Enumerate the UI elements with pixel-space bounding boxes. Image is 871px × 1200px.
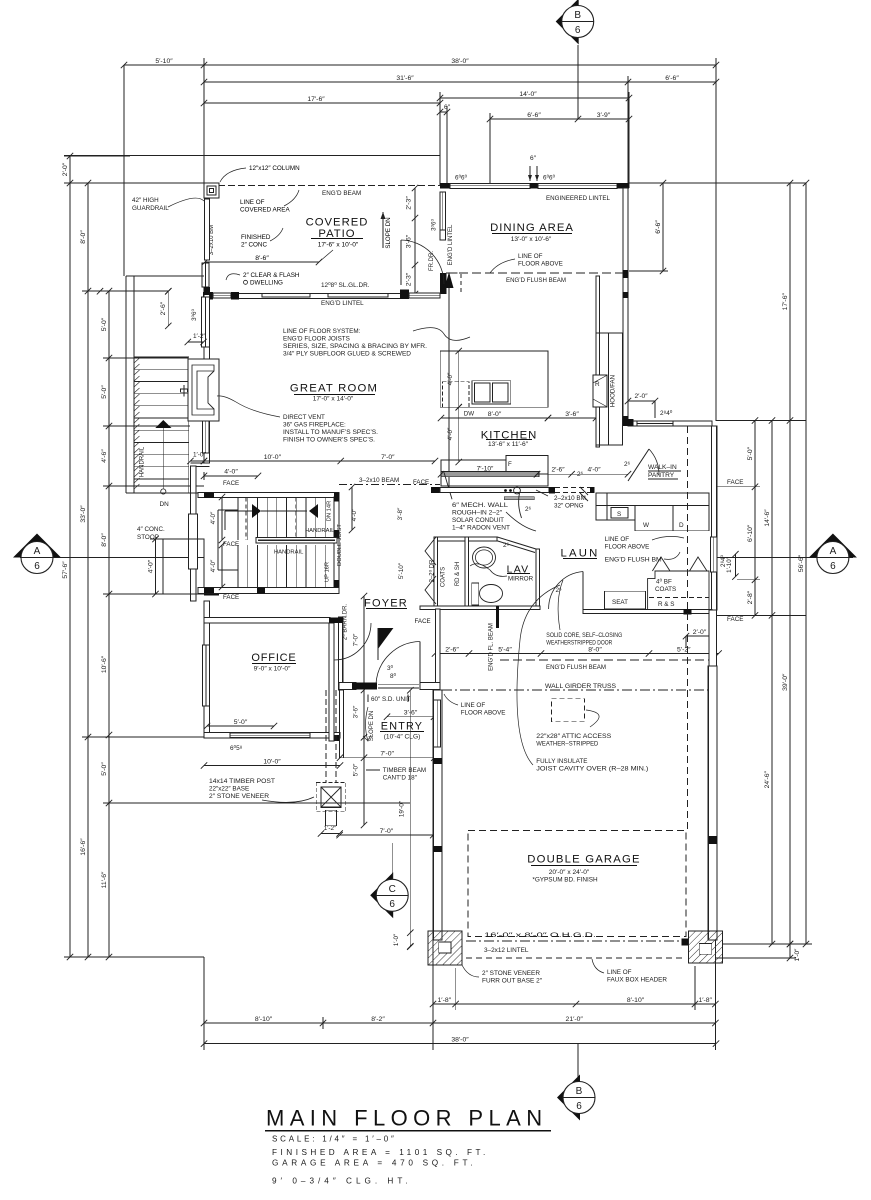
svg-text:33′-0″: 33′-0″ bbox=[80, 505, 87, 523]
svg-text:A: A bbox=[830, 546, 837, 557]
svg-text:56′-6″: 56′-6″ bbox=[798, 554, 805, 572]
svg-text:COATS: COATS bbox=[441, 567, 447, 587]
svg-text:FOYER: FOYER bbox=[364, 598, 408, 610]
svg-text:FAUX BOX HEADER: FAUX BOX HEADER bbox=[607, 977, 667, 984]
svg-text:7′-0″: 7′-0″ bbox=[353, 633, 360, 646]
svg-text:DWELLING: DWELLING bbox=[250, 280, 283, 287]
svg-text:22″x28″ ATTIC ACCESS: 22″x28″ ATTIC ACCESS bbox=[536, 733, 611, 740]
svg-text:6: 6 bbox=[34, 561, 40, 572]
svg-text:3′-9″: 3′-9″ bbox=[597, 112, 611, 119]
svg-text:6′-6″: 6′-6″ bbox=[665, 75, 679, 82]
svg-text:2′-3″: 2′-3″ bbox=[406, 272, 413, 286]
svg-text:UP 16R: UP 16R bbox=[325, 562, 331, 582]
svg-text:ENG’D BEAM: ENG’D BEAM bbox=[322, 190, 361, 197]
svg-text:FACE: FACE bbox=[415, 618, 431, 625]
svg-text:1′-2″: 1′-2″ bbox=[324, 825, 337, 832]
svg-text:17′-6″: 17′-6″ bbox=[782, 293, 789, 311]
svg-text:FLOOR ABOVE: FLOOR ABOVE bbox=[518, 261, 563, 268]
svg-text:ENG’D LINTEL: ENG’D LINTEL bbox=[448, 224, 454, 265]
svg-text:COVERED AREA: COVERED AREA bbox=[240, 207, 290, 214]
svg-text:GUARDRAIL: GUARDRAIL bbox=[132, 205, 169, 212]
svg-text:WEATHER–STRIPPED: WEATHER–STRIPPED bbox=[536, 741, 598, 748]
svg-text:8⁰: 8⁰ bbox=[390, 673, 397, 680]
svg-text:INSTALL TO MANUF’S SPEC’S.: INSTALL TO MANUF’S SPEC’S. bbox=[283, 429, 378, 436]
svg-text:7′-0″: 7′-0″ bbox=[380, 828, 394, 835]
svg-text:39′-0″: 39′-0″ bbox=[782, 673, 789, 691]
svg-text:5′-0″: 5′-0″ bbox=[747, 446, 754, 460]
svg-text:10′-0″: 10′-0″ bbox=[264, 454, 282, 461]
svg-text:5′-0″: 5′-0″ bbox=[234, 719, 248, 726]
svg-text:4′-6″: 4′-6″ bbox=[101, 449, 108, 463]
svg-text:RD & SH: RD & SH bbox=[455, 562, 461, 586]
svg-text:6″ MECH. WALL: 6″ MECH. WALL bbox=[452, 502, 509, 509]
svg-text:7′-10″: 7′-10″ bbox=[477, 466, 494, 473]
svg-text:LINE OF: LINE OF bbox=[607, 969, 632, 976]
svg-text:SEAT: SEAT bbox=[612, 599, 628, 606]
svg-text:6′-6″: 6′-6″ bbox=[655, 220, 662, 234]
svg-text:FINISHED AREA = 1101 SQ. FT.: FINISHED AREA = 1101 SQ. FT. bbox=[272, 1148, 489, 1157]
svg-text:6: 6 bbox=[830, 561, 836, 572]
svg-text:GARAGE AREA = 470 SQ. FT.: GARAGE AREA = 470 SQ. FT. bbox=[272, 1159, 476, 1168]
svg-text:14x14 TIMBER POST: 14x14 TIMBER POST bbox=[209, 778, 275, 785]
svg-text:11′-6″: 11′-6″ bbox=[101, 871, 108, 888]
svg-text:6″: 6″ bbox=[530, 155, 537, 162]
svg-text:6: 6 bbox=[576, 1101, 582, 1112]
svg-text:DW: DW bbox=[464, 410, 474, 417]
svg-text:8′-0″: 8′-0″ bbox=[588, 646, 602, 653]
svg-text:3/4″ PLY SUBFLOOR GLUED & SCRE: 3/4″ PLY SUBFLOOR GLUED & SCREWED bbox=[283, 351, 411, 358]
svg-text:FULLY INSULATE: FULLY INSULATE bbox=[536, 758, 587, 765]
svg-text:3′-6″: 3′-6″ bbox=[404, 710, 418, 717]
svg-text:1′-10″: 1′-10″ bbox=[726, 556, 733, 573]
svg-text:31′-6″: 31′-6″ bbox=[396, 75, 414, 82]
svg-text:1′-2″: 1′-2″ bbox=[193, 333, 206, 340]
svg-text:COVERED: COVERED bbox=[306, 217, 369, 229]
svg-text:2–2x10 BM: 2–2x10 BM bbox=[554, 495, 586, 502]
svg-text:5′-10″: 5′-10″ bbox=[155, 58, 173, 65]
svg-text:WEATHERSTRIPPED DOOR: WEATHERSTRIPPED DOOR bbox=[546, 640, 612, 647]
svg-text:LINE OF: LINE OF bbox=[240, 199, 265, 206]
svg-text:ENG’D LINTEL: ENG’D LINTEL bbox=[321, 300, 364, 307]
svg-text:5′-0″: 5′-0″ bbox=[101, 317, 108, 331]
svg-text:DIRECT VENT: DIRECT VENT bbox=[283, 414, 325, 421]
svg-text:20′-0″ x 24′-0″: 20′-0″ x 24′-0″ bbox=[549, 869, 590, 876]
svg-text:DOUBLE JOIST: DOUBLE JOIST bbox=[337, 524, 343, 566]
svg-text:42″ HIGH: 42″ HIGH bbox=[132, 197, 159, 204]
svg-text:6⁰5⁸: 6⁰5⁸ bbox=[230, 745, 243, 752]
svg-text:3–2x12 LINTEL: 3–2x12 LINTEL bbox=[484, 947, 529, 954]
svg-text:MAIN FLOOR PLAN: MAIN FLOOR PLAN bbox=[266, 1106, 547, 1131]
svg-text:FACE: FACE bbox=[223, 541, 239, 548]
svg-text:FLOOR ABOVE: FLOOR ABOVE bbox=[605, 544, 650, 551]
svg-text:LAUN: LAUN bbox=[561, 548, 600, 560]
svg-text:B: B bbox=[576, 1086, 583, 1097]
svg-text:2⁶: 2⁶ bbox=[556, 587, 563, 594]
svg-text:2′-8″: 2′-8″ bbox=[747, 590, 754, 604]
svg-text:9′-0″ x 10′-0″: 9′-0″ x 10′-0″ bbox=[254, 666, 291, 673]
svg-text:22″x22″ BASE: 22″x22″ BASE bbox=[209, 786, 249, 793]
svg-text:W: W bbox=[643, 522, 650, 529]
svg-text:8′-2″: 8′-2″ bbox=[371, 1016, 385, 1023]
svg-text:LINE OF FLOOR SYSTEM:: LINE OF FLOOR SYSTEM: bbox=[283, 328, 361, 335]
svg-text:36″ GAS FIREPLACE:: 36″ GAS FIREPLACE: bbox=[283, 422, 346, 429]
svg-text:2″ CONC: 2″ CONC bbox=[241, 242, 267, 249]
svg-text:16′-6″: 16′-6″ bbox=[80, 838, 87, 856]
svg-text:17′-6″ x 10′-0″: 17′-6″ x 10′-0″ bbox=[318, 242, 359, 249]
svg-text:PANTRY: PANTRY bbox=[648, 472, 675, 479]
svg-text:JOIST CAVITY OVER (R–28 MIN.): JOIST CAVITY OVER (R–28 MIN.) bbox=[536, 766, 648, 773]
svg-text:24′-6″: 24′-6″ bbox=[764, 770, 771, 788]
svg-text:WALK–IN: WALK–IN bbox=[648, 464, 677, 471]
svg-text:14′-6″: 14′-6″ bbox=[764, 509, 771, 527]
svg-text:2′-0″: 2′-0″ bbox=[62, 162, 69, 176]
svg-text:7′-0″: 7′-0″ bbox=[381, 454, 395, 461]
svg-text:8′-0″: 8′-0″ bbox=[80, 230, 87, 244]
svg-text:DN: DN bbox=[160, 501, 170, 508]
svg-text:4′-0″: 4′-0″ bbox=[447, 427, 454, 440]
svg-text:FLOOR ABOVE: FLOOR ABOVE bbox=[461, 710, 506, 717]
svg-text:6′-10″: 6′-10″ bbox=[747, 524, 754, 542]
svg-text:17′-0″ x 14′-0″: 17′-0″ x 14′-0″ bbox=[313, 396, 354, 403]
svg-text:4″ CONC.: 4″ CONC. bbox=[137, 526, 165, 533]
svg-text:HANDRAIL: HANDRAIL bbox=[274, 550, 304, 556]
svg-text:4′-0″: 4′-0″ bbox=[210, 511, 217, 524]
svg-text:8′-0″: 8′-0″ bbox=[488, 411, 502, 418]
svg-text:FACE: FACE bbox=[413, 479, 429, 486]
svg-text:6: 6 bbox=[389, 899, 395, 910]
svg-text:ENG’D FLUSH BEAM: ENG’D FLUSH BEAM bbox=[506, 277, 566, 284]
svg-text:38′-0″: 38′-0″ bbox=[451, 1036, 469, 1043]
svg-text:ENG’D FLOOR JOISTS: ENG’D FLOOR JOISTS bbox=[283, 336, 350, 343]
svg-text:16′-0″ x 8′-0″ O.H.G.D.: 16′-0″ x 8′-0″ O.H.G.D. bbox=[484, 932, 596, 939]
svg-text:FINISHED: FINISHED bbox=[241, 234, 271, 241]
svg-text:DOUBLE GARAGE: DOUBLE GARAGE bbox=[527, 854, 641, 866]
svg-text:2′-6″: 2′-6″ bbox=[445, 646, 459, 653]
svg-text:5′-0″: 5′-0″ bbox=[101, 762, 108, 776]
svg-text:F: F bbox=[508, 461, 512, 468]
svg-text:FACE: FACE bbox=[223, 594, 239, 601]
svg-text:1–4″ RADON VENT: 1–4″ RADON VENT bbox=[452, 525, 510, 532]
svg-text:FURR OUT BASE 2″: FURR OUT BASE 2″ bbox=[482, 978, 543, 985]
svg-text:4′-0″: 4′-0″ bbox=[351, 508, 358, 521]
svg-text:10′-0″: 10′-0″ bbox=[263, 758, 281, 765]
svg-text:S: S bbox=[617, 511, 621, 518]
svg-text:1′-0″: 1′-0″ bbox=[393, 933, 400, 946]
svg-text:4′-0″: 4′-0″ bbox=[587, 467, 601, 474]
svg-text:4′-0″: 4′-0″ bbox=[224, 469, 238, 476]
svg-text:13′-6″ x 11′-6″: 13′-6″ x 11′-6″ bbox=[488, 441, 529, 448]
svg-text:(10′-4″ CLG): (10′-4″ CLG) bbox=[384, 734, 421, 741]
svg-text:8′-10″: 8′-10″ bbox=[255, 1016, 273, 1023]
svg-text:3–2x10 BEAM: 3–2x10 BEAM bbox=[359, 477, 399, 484]
svg-text:5′-0″: 5′-0″ bbox=[353, 763, 360, 776]
svg-text:MIRROR: MIRROR bbox=[508, 576, 534, 583]
svg-text:5′-4″: 5′-4″ bbox=[498, 646, 512, 653]
svg-text:ENG’D FLUSH BEAM: ENG’D FLUSH BEAM bbox=[546, 664, 606, 671]
svg-text:FACE: FACE bbox=[223, 480, 239, 487]
svg-text:WALL GIRDER TRUSS: WALL GIRDER TRUSS bbox=[545, 683, 616, 690]
svg-text:3′-8″: 3′-8″ bbox=[397, 507, 404, 520]
svg-text:12″x12″ COLUMN: 12″x12″ COLUMN bbox=[249, 165, 300, 172]
svg-text:1′-8″: 1′-8″ bbox=[698, 997, 712, 1004]
svg-text:2′-6″: 2′-6″ bbox=[160, 301, 167, 315]
svg-text:LINE OF: LINE OF bbox=[605, 536, 630, 543]
svg-text:LINE OF: LINE OF bbox=[518, 253, 543, 260]
svg-text:D: D bbox=[679, 522, 684, 529]
svg-text:4′-0″: 4′-0″ bbox=[210, 559, 217, 572]
svg-text:*GYPSUM BD. FINISH: *GYPSUM BD. FINISH bbox=[532, 877, 598, 884]
svg-text:LINE OF: LINE OF bbox=[461, 702, 486, 709]
svg-text:R & S: R & S bbox=[658, 601, 674, 608]
svg-text:2⁶: 2⁶ bbox=[503, 542, 510, 549]
svg-text:2⁶: 2⁶ bbox=[577, 471, 584, 478]
svg-text:ENG’D FL. BEAM: ENG’D FL. BEAM bbox=[489, 623, 495, 671]
svg-text:1′-0″: 1′-0″ bbox=[794, 948, 801, 962]
svg-text:3⁰6⁰: 3⁰6⁰ bbox=[191, 309, 198, 321]
svg-text:R: R bbox=[595, 381, 600, 388]
svg-text:SOLAR CONDUIT: SOLAR CONDUIT bbox=[452, 517, 504, 524]
svg-text:2⁸4⁰: 2⁸4⁰ bbox=[660, 410, 673, 417]
svg-text:ENG’D FLUSH BM: ENG’D FLUSH BM bbox=[605, 557, 662, 564]
svg-text:HANDRAIL: HANDRAIL bbox=[305, 528, 335, 534]
svg-text:3′-6″: 3′-6″ bbox=[353, 705, 360, 718]
svg-text:SLOPE DN: SLOPE DN bbox=[369, 711, 375, 741]
svg-text:3′-6″: 3′-6″ bbox=[565, 411, 579, 418]
svg-text:14′-0″: 14′-0″ bbox=[519, 91, 537, 98]
svg-text:3′-6″: 3′-6″ bbox=[406, 234, 413, 248]
svg-text:4′-0″: 4′-0″ bbox=[447, 372, 454, 385]
svg-text:HOOD/FAN: HOOD/FAN bbox=[610, 375, 617, 407]
svg-text:2″ STONE VENEER: 2″ STONE VENEER bbox=[209, 793, 269, 800]
svg-text:4′-0″: 4′-0″ bbox=[147, 559, 154, 573]
svg-text:COATS: COATS bbox=[655, 586, 676, 593]
svg-text:FACE: FACE bbox=[727, 616, 743, 623]
svg-text:5′-2″: 5′-2″ bbox=[677, 646, 691, 653]
svg-text:A: A bbox=[34, 546, 41, 557]
svg-text:2⁶: 2⁶ bbox=[525, 506, 532, 513]
svg-text:6′-6″: 6′-6″ bbox=[527, 112, 541, 119]
svg-text:3⁰: 3⁰ bbox=[387, 665, 394, 672]
svg-text:2″ STONE VENEER: 2″ STONE VENEER bbox=[482, 970, 540, 977]
svg-text:6⁰6⁰: 6⁰6⁰ bbox=[543, 175, 556, 182]
svg-text:57′-6″: 57′-6″ bbox=[62, 561, 69, 579]
svg-text:12⁰8⁰ SL.GL.DR.: 12⁰8⁰ SL.GL.DR. bbox=[321, 282, 370, 289]
svg-text:60″ S.D. UNIT: 60″ S.D. UNIT bbox=[371, 696, 411, 703]
svg-text:HANDRAIL: HANDRAIL bbox=[140, 446, 146, 477]
svg-text:5′-0″: 5′-0″ bbox=[101, 385, 108, 399]
svg-text:8′-0″: 8′-0″ bbox=[101, 533, 108, 547]
svg-text:2′-0″: 2′-0″ bbox=[634, 393, 648, 400]
svg-text:ENGINEERED LINTEL: ENGINEERED LINTEL bbox=[546, 195, 610, 202]
svg-text:5′-10″: 5′-10″ bbox=[398, 562, 405, 579]
svg-text:38′-0″: 38′-0″ bbox=[451, 58, 469, 65]
svg-text:6: 6 bbox=[575, 25, 581, 36]
svg-text:TIMBER BEAM: TIMBER BEAM bbox=[383, 767, 426, 774]
svg-text:2′-3″: 2′-3″ bbox=[406, 196, 413, 210]
svg-text:2′-6″: 2′-6″ bbox=[551, 467, 565, 474]
svg-text:GREAT ROOM: GREAT ROOM bbox=[290, 383, 378, 395]
svg-text:9′ 0–3/4″ CLG. HT.: 9′ 0–3/4″ CLG. HT. bbox=[272, 1177, 412, 1186]
svg-text:8′-6″: 8′-6″ bbox=[255, 255, 269, 262]
svg-text:10′-6″: 10′-6″ bbox=[101, 655, 108, 673]
svg-text:17′-6″: 17′-6″ bbox=[307, 96, 325, 103]
svg-text:ROUGH–IN 2–2″: ROUGH–IN 2–2″ bbox=[452, 510, 503, 517]
svg-text:13′-0″ x 10′-6″: 13′-0″ x 10′-6″ bbox=[511, 236, 552, 243]
svg-text:SOLID CORE, SELF–CLOSING: SOLID CORE, SELF–CLOSING bbox=[546, 632, 622, 639]
svg-text:7′-0″: 7′-0″ bbox=[380, 751, 394, 758]
svg-text:SERIES, SIZE, SPACING & BRACIN: SERIES, SIZE, SPACING & BRACING BY MFR. bbox=[283, 343, 427, 350]
svg-text:3⁰6⁰: 3⁰6⁰ bbox=[431, 219, 438, 231]
svg-text:2′-0″: 2′-0″ bbox=[693, 629, 707, 636]
svg-text:1′-0″: 1′-0″ bbox=[193, 452, 206, 459]
svg-text:SCALE: 1/4″ = 1′–0″: SCALE: 1/4″ = 1′–0″ bbox=[272, 1135, 397, 1144]
svg-text:1′-8″: 1′-8″ bbox=[438, 997, 452, 1004]
svg-text:4⁰ BF: 4⁰ BF bbox=[656, 579, 672, 586]
svg-text:19′-0″: 19′-0″ bbox=[399, 800, 406, 817]
svg-text:2″ CLEAR & FLASH: 2″ CLEAR & FLASH bbox=[243, 272, 300, 279]
svg-text:6⁰6⁰: 6⁰6⁰ bbox=[455, 175, 468, 182]
svg-text:ENTRY: ENTRY bbox=[381, 721, 423, 733]
svg-text:CANT’D 18″: CANT’D 18″ bbox=[383, 775, 418, 782]
svg-text:FACE: FACE bbox=[727, 479, 743, 486]
svg-text:OFFICE: OFFICE bbox=[251, 652, 296, 664]
svg-text:2–2⁰ DR: 2–2⁰ DR bbox=[429, 559, 436, 582]
svg-text:C: C bbox=[389, 884, 396, 895]
svg-text:DINING AREA: DINING AREA bbox=[490, 222, 574, 234]
svg-text:21′-0″: 21′-0″ bbox=[566, 1016, 584, 1023]
svg-text:2⁶: 2⁶ bbox=[624, 461, 631, 468]
svg-text:DN 14R: DN 14R bbox=[327, 501, 333, 522]
svg-text:8′-10″: 8′-10″ bbox=[627, 997, 645, 1004]
svg-text:FINISH TO OWNER’S SPEC’S.: FINISH TO OWNER’S SPEC’S. bbox=[283, 437, 375, 444]
svg-text:32″ OPNG: 32″ OPNG bbox=[554, 503, 584, 510]
svg-text:SLOPE DN: SLOPE DN bbox=[385, 217, 392, 248]
svg-text:B: B bbox=[574, 10, 581, 21]
